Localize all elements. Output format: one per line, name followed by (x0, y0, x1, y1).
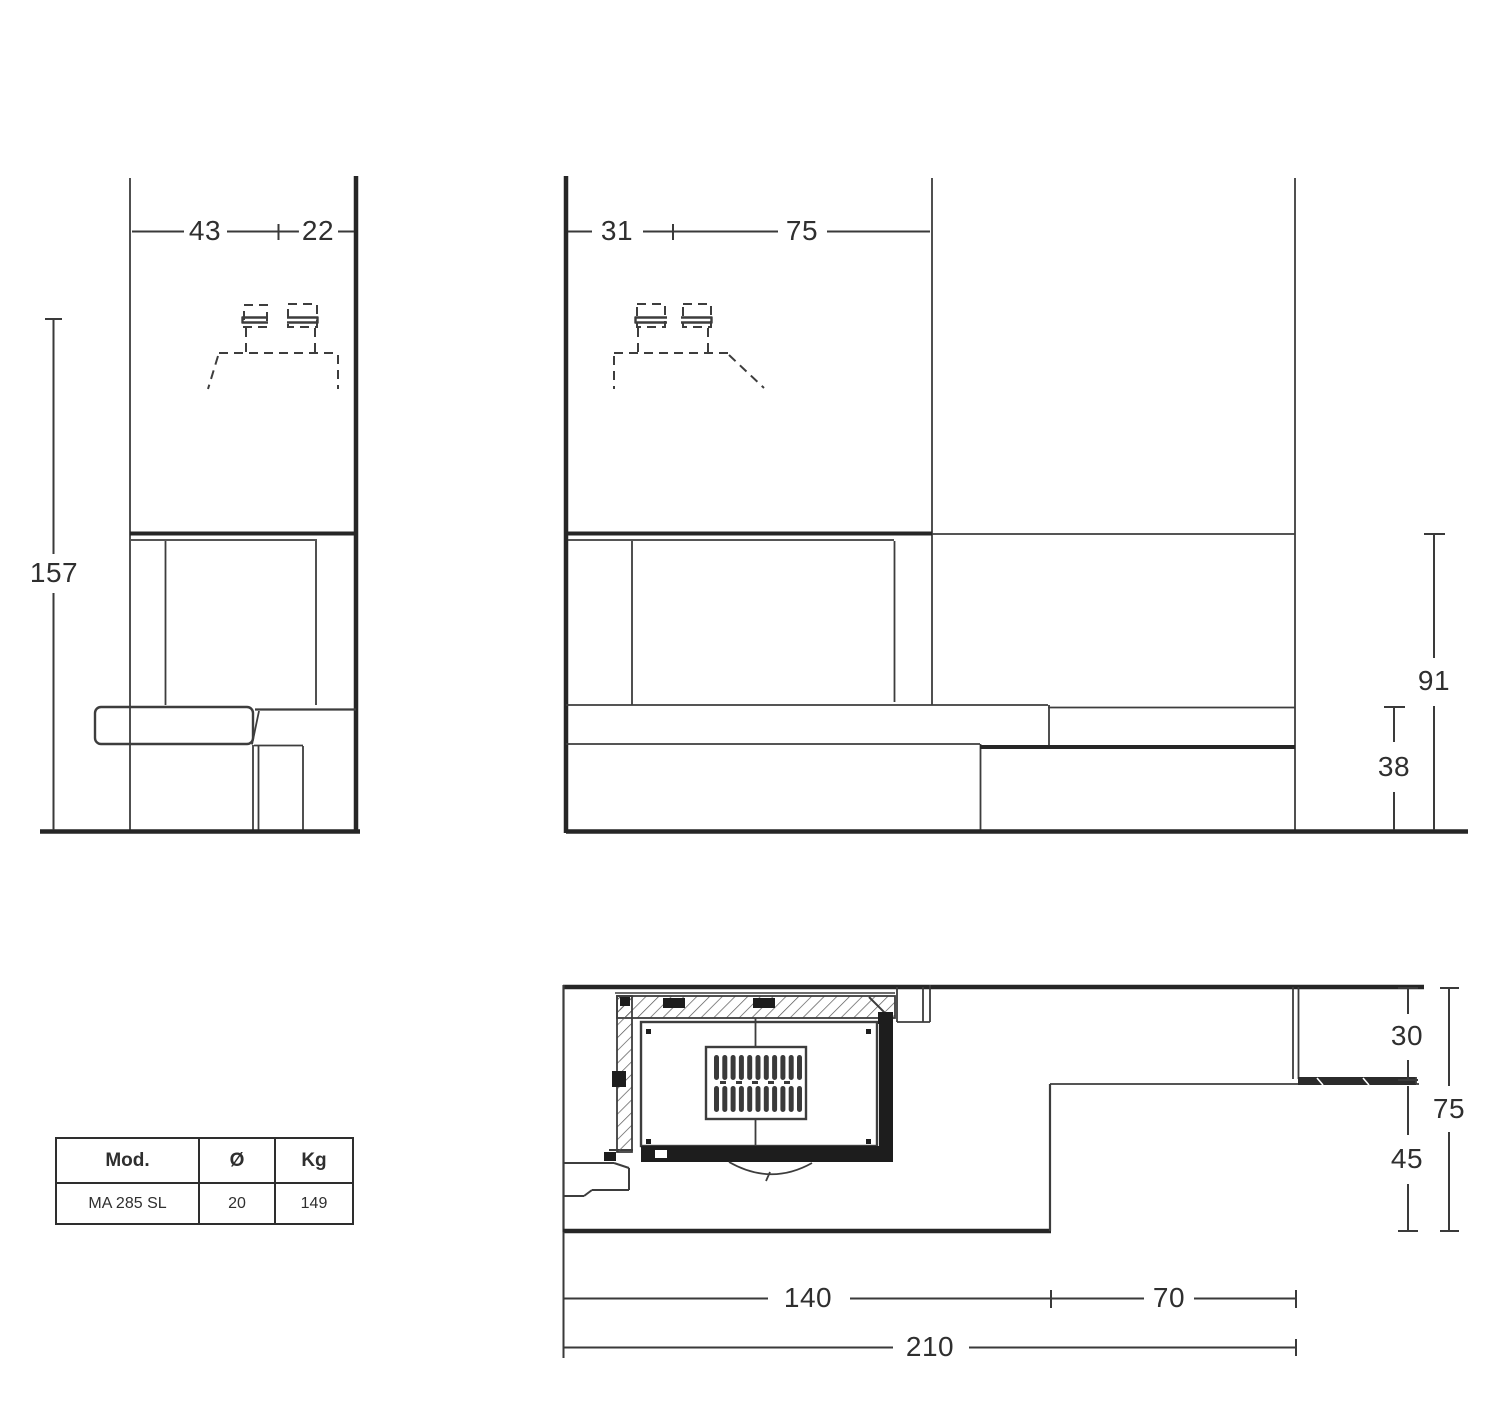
front-height-label: 157 (27, 559, 81, 587)
plan-wall-depth-label: 30 (1388, 1022, 1426, 1050)
plan-width-main-label: 140 (781, 1284, 835, 1312)
plan-bench (563, 1150, 633, 1196)
plan-width-side-label: 70 (1150, 1284, 1188, 1312)
side-bench-height-label: 38 (1375, 753, 1413, 781)
side-flue-dashed (614, 304, 764, 389)
insert-frame-front (641, 1146, 893, 1162)
firebox-insert (612, 993, 895, 1181)
front-flue-dashed (208, 304, 338, 389)
spec-table-weight-value: 149 (275, 1183, 353, 1224)
spec-table-header-model: Mod. (56, 1138, 199, 1183)
plan-width-total-label: 210 (903, 1333, 957, 1361)
insert-frame-right (879, 1024, 893, 1162)
side-lintel-height-label: 91 (1415, 667, 1453, 695)
door-swing-arc (729, 1162, 812, 1181)
front-width-left-label: 43 (186, 217, 224, 245)
side-depth-left-label: 31 (598, 217, 636, 245)
plan-top-right-step (897, 985, 930, 1022)
side-view-drawing (566, 176, 1468, 833)
spec-table: Mod. Ø Kg MA 285 SL 20 149 (55, 1137, 354, 1225)
side-flue-flanges (635, 317, 712, 324)
fireplace-technical-drawing-page: 43 22 157 31 75 91 38 30 45 75 140 70 21… (0, 0, 1500, 1427)
spec-table-data-row: MA 285 SL 20 149 (56, 1183, 353, 1224)
front-view-drawing (40, 176, 360, 833)
spec-table-model-value: MA 285 SL (56, 1183, 199, 1224)
spec-table-diameter-value: 20 (199, 1183, 275, 1224)
spec-table-header-row: Mod. Ø Kg (56, 1138, 353, 1183)
spec-table-header-weight: Kg (275, 1138, 353, 1183)
front-bench (95, 707, 253, 744)
plan-total-depth-label: 75 (1430, 1095, 1468, 1123)
insert-firebox (641, 1022, 877, 1146)
front-dimensions (45, 224, 354, 830)
side-dimensions (568, 224, 1445, 830)
side-depth-right-label: 75 (783, 217, 821, 245)
plan-hearth-depth-label: 45 (1388, 1145, 1426, 1173)
spec-table-header-diameter: Ø (199, 1138, 275, 1183)
front-width-right-label: 22 (299, 217, 337, 245)
front-flue-flanges (242, 317, 318, 324)
